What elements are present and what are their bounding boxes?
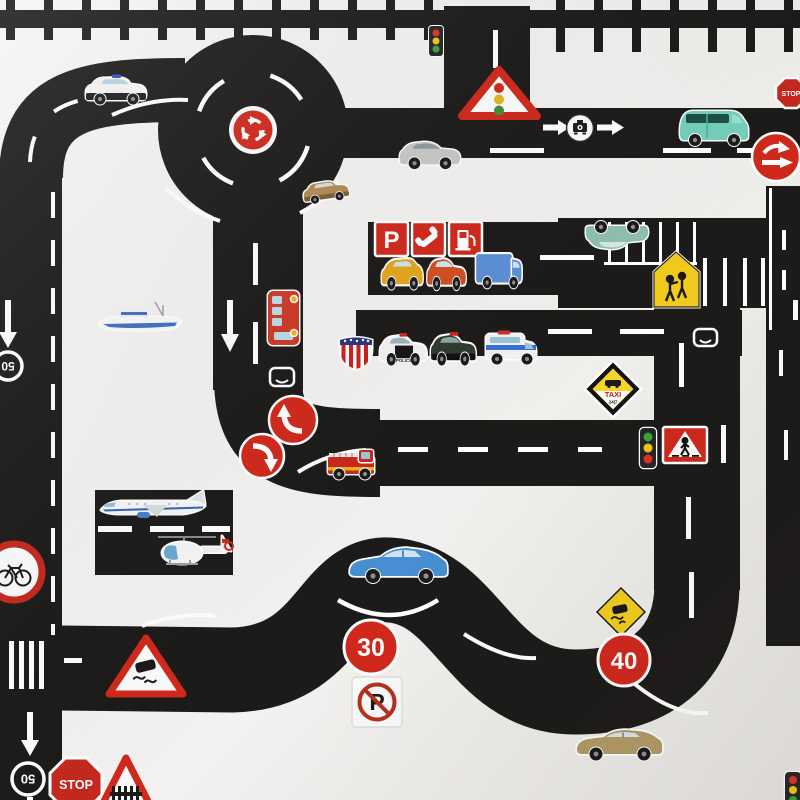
playmat-photo: 50 50 <box>0 0 800 800</box>
playmat-scene: 50 50 <box>0 0 800 800</box>
photo-shading <box>0 0 800 800</box>
